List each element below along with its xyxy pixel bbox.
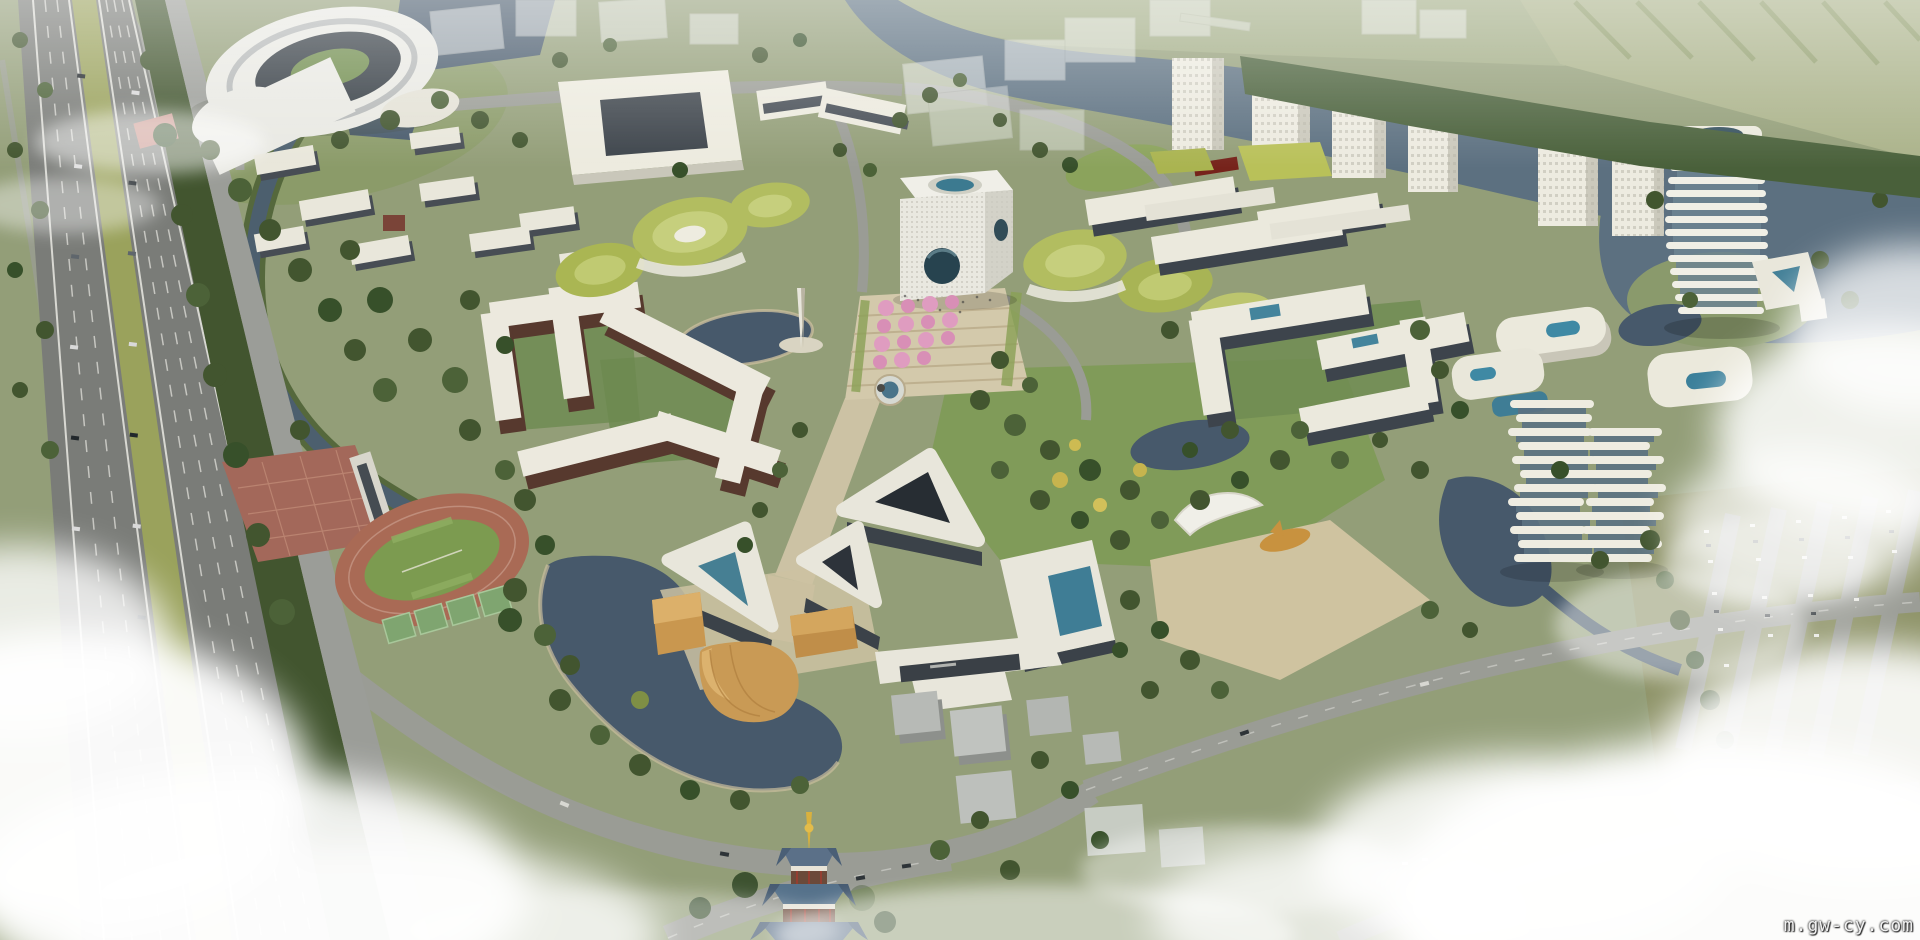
- atmospheric-haze: [0, 0, 1920, 170]
- masterplan-svg: Aerial rendering of a technology-park ca…: [0, 0, 1920, 940]
- watermark-text: m.gw-cy.com: [1784, 915, 1914, 936]
- aerial-render-image: Aerial rendering of a technology-park ca…: [0, 0, 1920, 940]
